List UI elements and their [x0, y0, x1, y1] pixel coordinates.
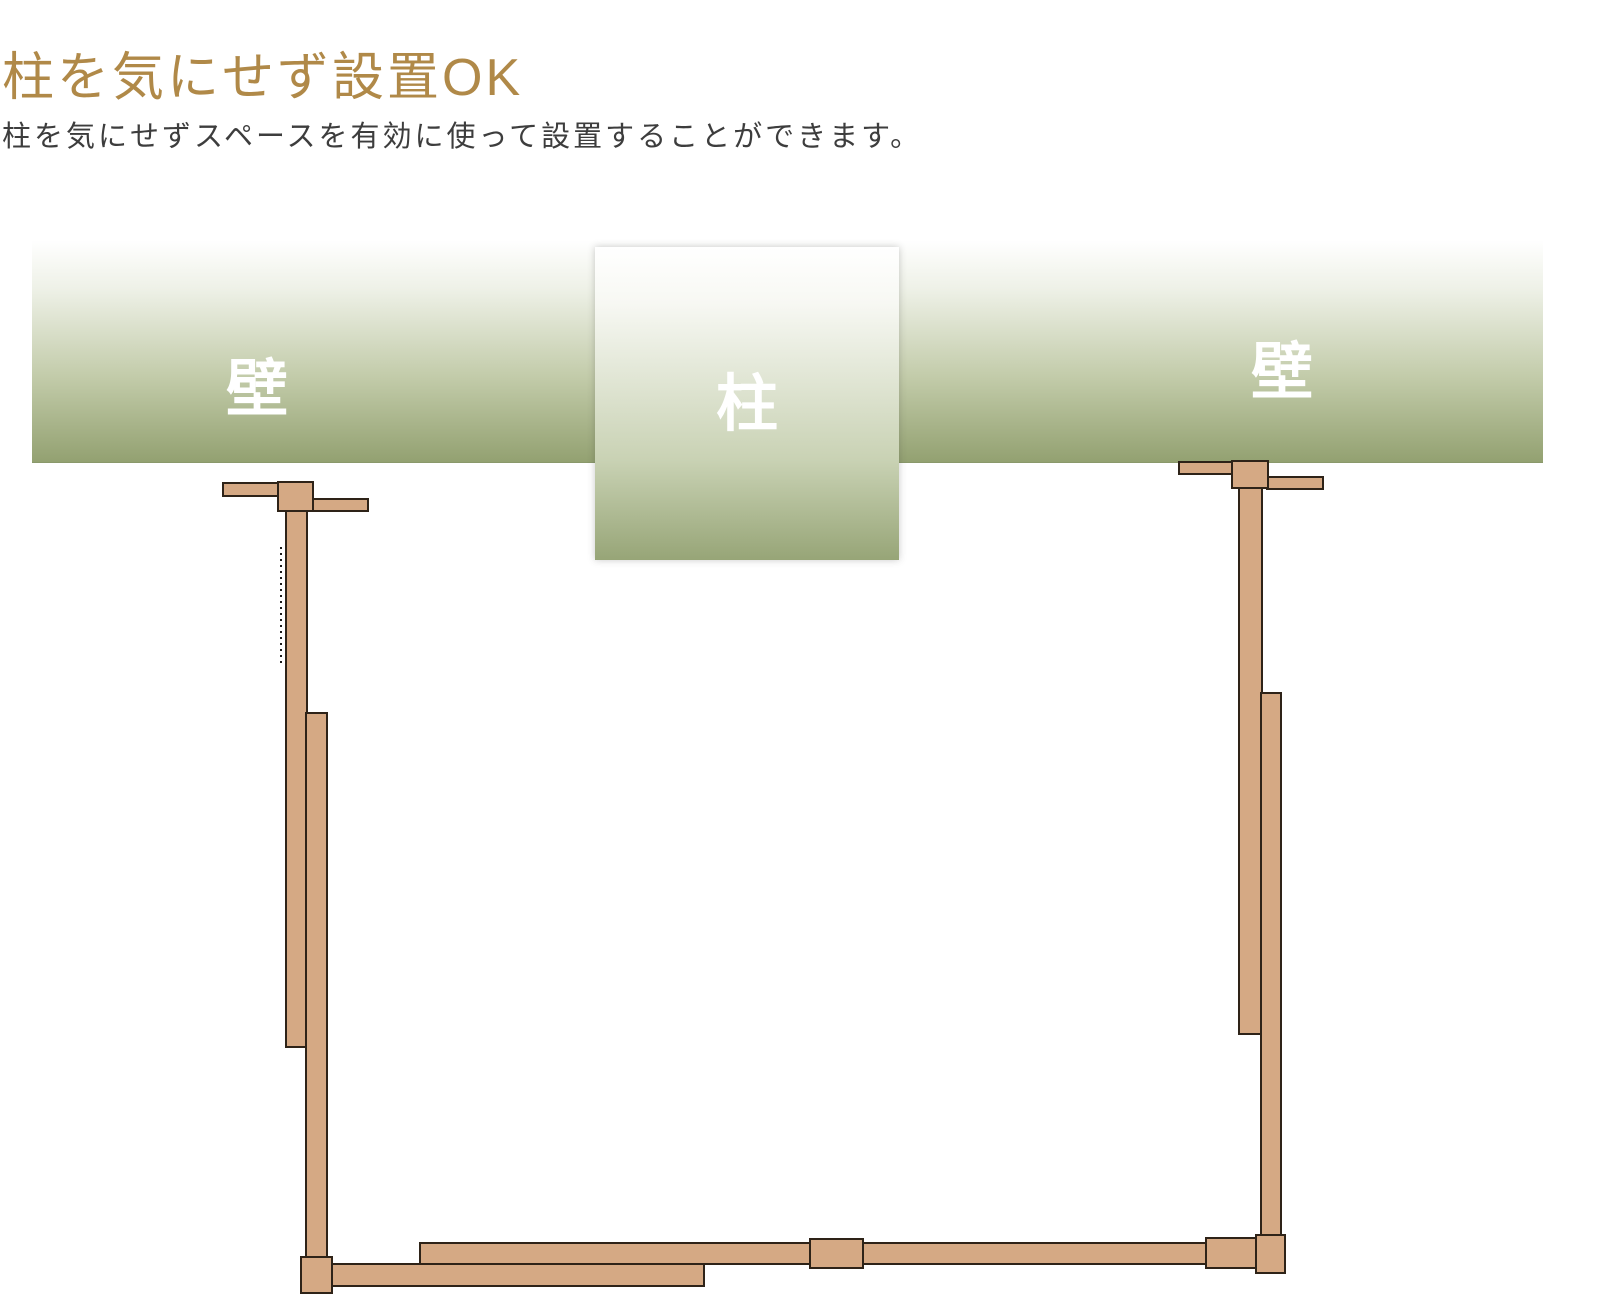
fence-left-wall-cap	[277, 481, 314, 512]
fence-bottom-right-junction	[1205, 1237, 1258, 1269]
fence-left-arm-left	[222, 482, 281, 497]
wall-label-left: 壁	[226, 359, 288, 421]
fence-left-panel	[305, 712, 328, 1259]
fence-right-arm-right	[1266, 476, 1324, 490]
pillar-label: 柱	[716, 374, 778, 436]
fence-left-corner-post	[300, 1256, 333, 1294]
fence-bottom-bar-left	[419, 1242, 813, 1265]
fence-right-wall-cap	[1231, 460, 1269, 489]
fence-right-arm-left	[1178, 461, 1236, 475]
fence-bottom-bar-lower	[331, 1263, 705, 1287]
dotted-guide-line	[280, 547, 282, 663]
page-subtitle: 柱を気にせずスペースを有効に使って設置することができます。	[2, 113, 922, 155]
fence-bottom-mid-junction	[809, 1238, 864, 1269]
page-canvas: 柱を気にせず設置OK 柱を気にせずスペースを有効に使って設置することができます。…	[0, 0, 1600, 1294]
fence-right-panel	[1260, 692, 1282, 1238]
fence-bottom-bar-right	[861, 1242, 1208, 1265]
fence-right-corner-post	[1255, 1234, 1286, 1274]
page-title: 柱を気にせず設置OK	[2, 35, 523, 110]
fence-left-arm-right	[312, 498, 369, 512]
wall-label-right: 壁	[1251, 342, 1313, 404]
